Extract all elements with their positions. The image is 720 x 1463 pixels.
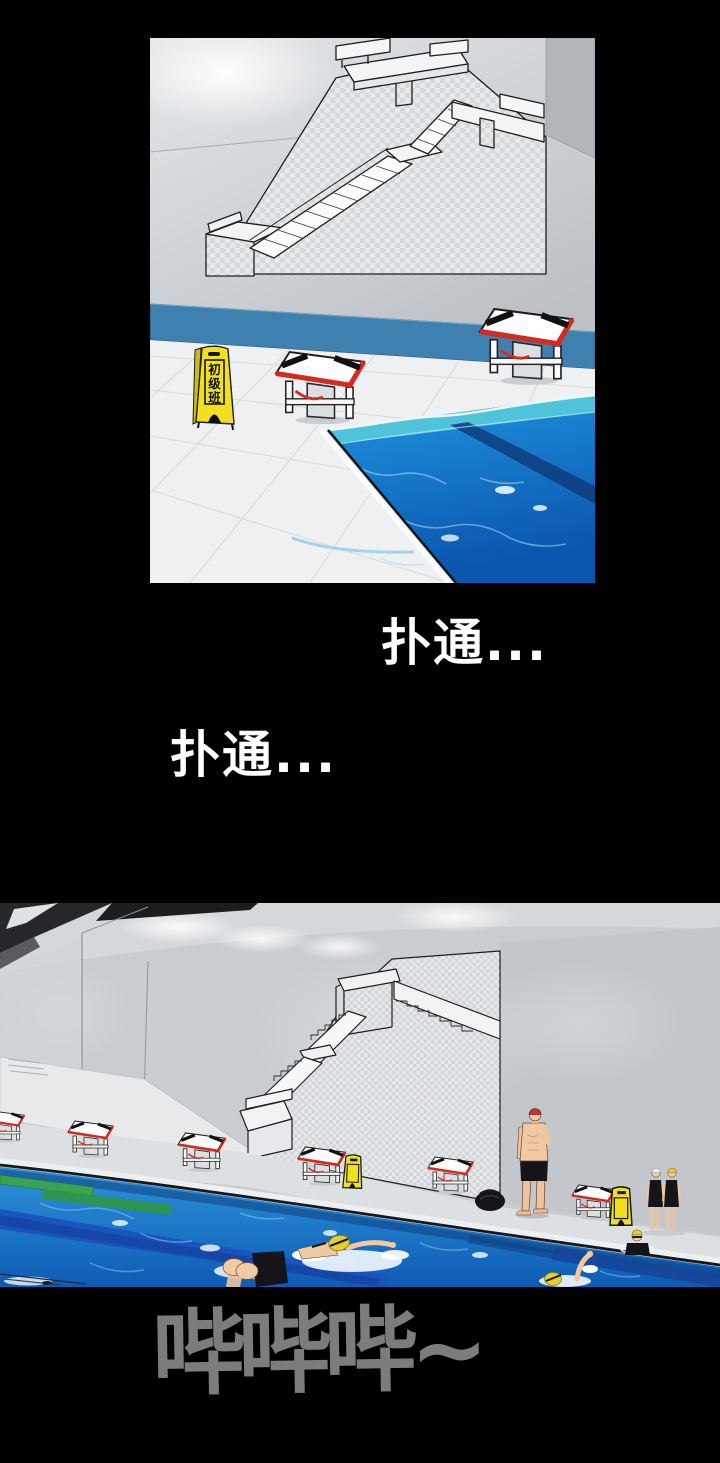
sfx-splash-left: 扑通... (170, 730, 337, 780)
panel-pool-swimmers (0, 903, 720, 1287)
panel-pool-empty: 初 级 班 (150, 38, 595, 583)
sfx-whistle: 哔哔哔~ (151, 1303, 481, 1403)
sign-char-2: 级 (208, 376, 221, 391)
sign-char-1: 初 (208, 362, 221, 377)
caution-sign (610, 1187, 632, 1225)
sfx-splash-right: 扑通... (381, 618, 548, 668)
caution-sign: 初 级 班 (193, 346, 234, 430)
sign-char-3: 班 (208, 390, 221, 405)
comic-page: 初 级 班 扑通... 扑通... (0, 0, 720, 1463)
caution-sign (343, 1155, 363, 1189)
